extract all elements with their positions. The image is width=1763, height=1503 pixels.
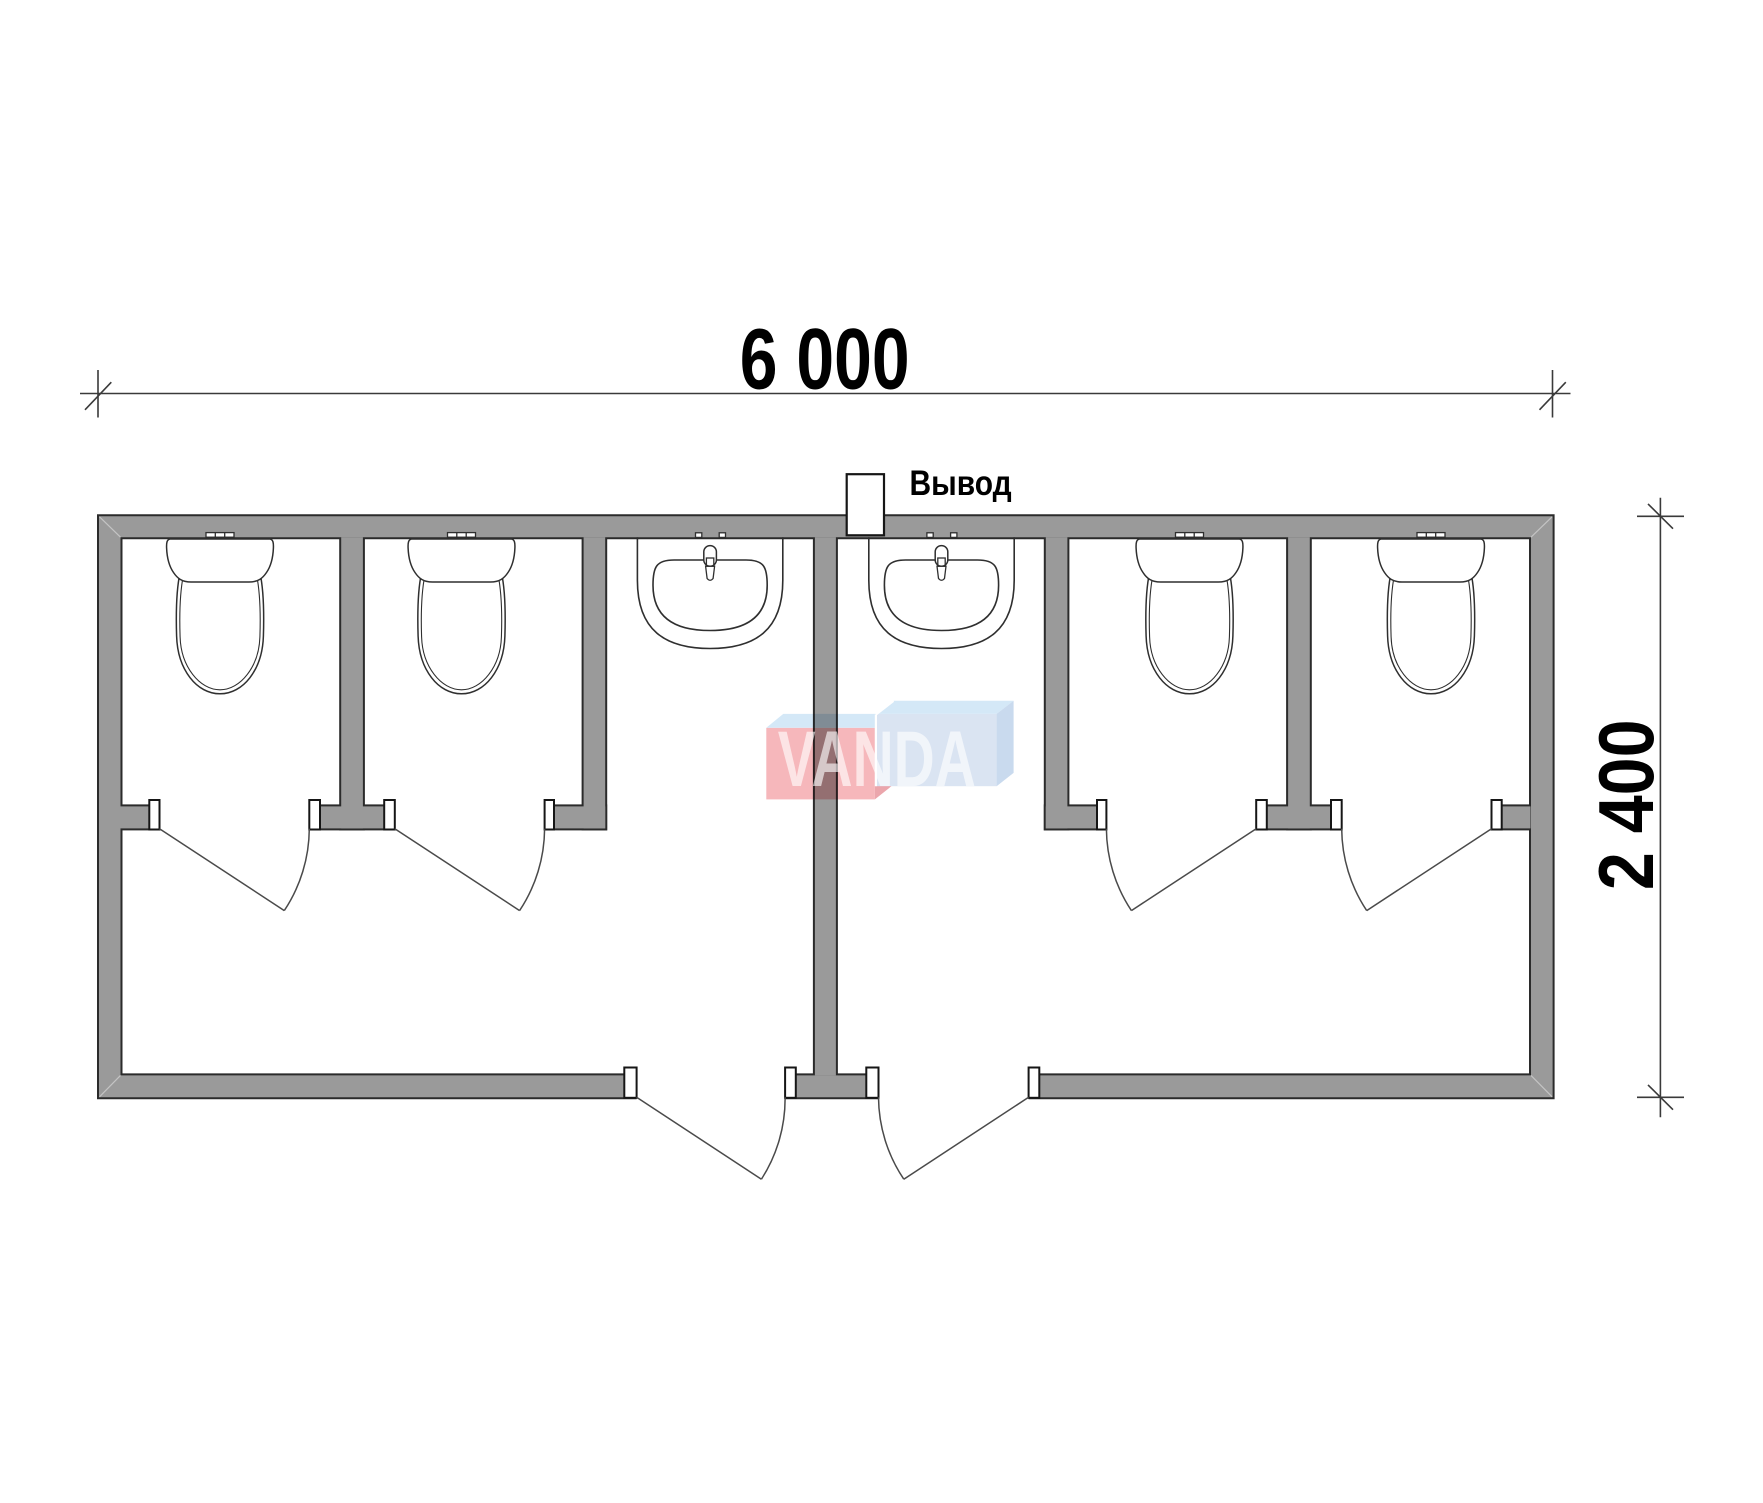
svg-text:Вывод: Вывод (910, 464, 1012, 503)
svg-text:2 400: 2 400 (1583, 719, 1670, 890)
svg-text:VANDA: VANDA (778, 715, 976, 803)
svg-text:6 000: 6 000 (740, 312, 910, 407)
